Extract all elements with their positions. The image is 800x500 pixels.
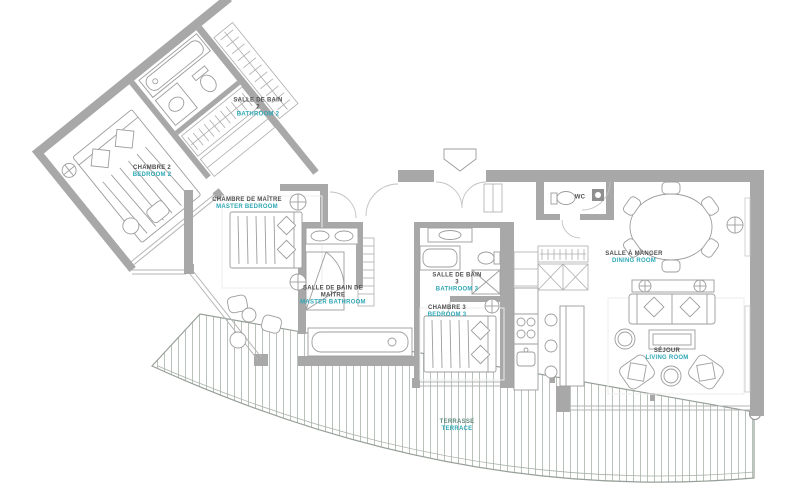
kitchen-cabinet-icon — [514, 252, 538, 286]
kitchen-island-icon — [560, 306, 584, 386]
floor-plan-drawing — [0, 0, 800, 500]
floor-plan: SALLE DE BAIN 2 BATHROOM 2 CHAMBRE 2 BED… — [0, 0, 800, 500]
master-bed-icon — [230, 212, 302, 268]
kitchen-room — [514, 252, 584, 390]
wc-room — [551, 189, 604, 205]
bedroom3-room — [420, 299, 504, 380]
console-icon — [632, 280, 714, 292]
coffee-table-icon — [649, 330, 695, 349]
vanity3-icon — [428, 228, 472, 242]
dining-side-table-icon — [727, 217, 743, 233]
shower3-icon — [472, 270, 500, 294]
master-bathtub-icon — [308, 328, 412, 356]
shower-icon — [306, 252, 344, 310]
pouf-icon — [615, 329, 635, 349]
window-ledge — [745, 306, 750, 392]
bar-stools-icon — [545, 314, 557, 378]
dining-room — [622, 182, 743, 272]
bathroom3-room — [420, 228, 500, 294]
toilet2-icon — [192, 66, 220, 95]
entry-cabinet-icon — [484, 184, 502, 212]
kitchen-counter-icon — [514, 288, 538, 390]
round-table-icon — [661, 366, 681, 386]
toilet3-icon — [478, 252, 500, 264]
sofa-icon — [629, 294, 715, 324]
entrance-arrow-icon — [444, 149, 476, 171]
bed3-icon — [424, 316, 496, 372]
connecting-window — [132, 270, 186, 274]
toilet-icon — [551, 192, 575, 205]
window-ledge-2 — [745, 198, 750, 256]
bedroom3-table-icon — [485, 299, 499, 313]
hall-closet-x-icon — [538, 264, 588, 290]
bathtub3-icon — [420, 246, 460, 270]
dining-table-icon — [630, 194, 712, 260]
hall-closet-hangers-icon — [538, 246, 588, 262]
double-sink-icon — [306, 228, 358, 244]
